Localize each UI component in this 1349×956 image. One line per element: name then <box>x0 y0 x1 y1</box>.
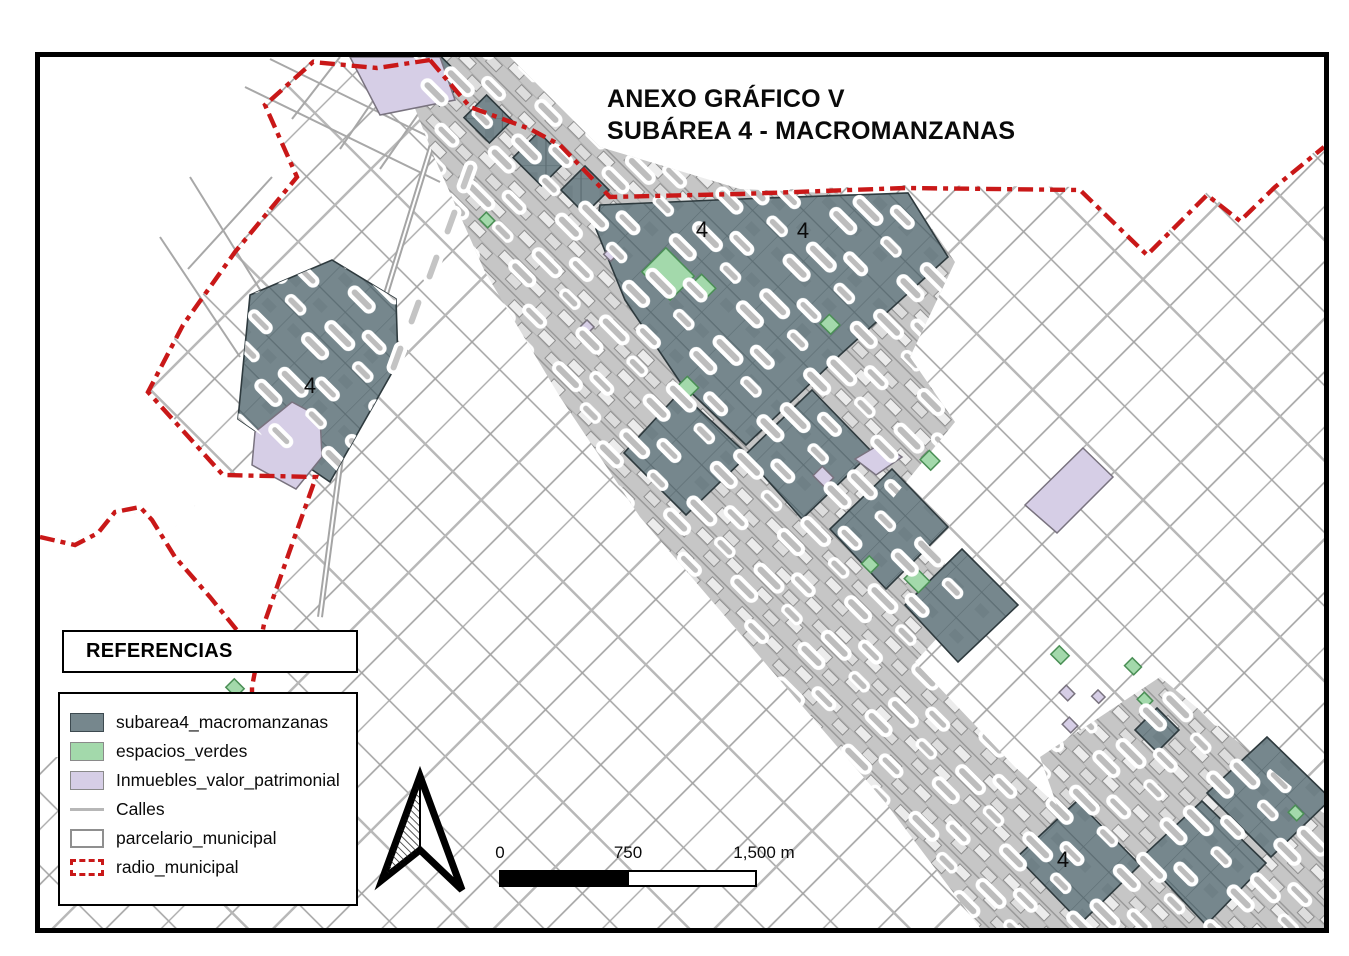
map-title-line2: SUBÁREA 4 - MACROMANZANAS <box>607 115 1015 147</box>
map-frame: 4 4 4 4 0 750 1,500 m ANEXO GRÁFICO V <box>35 52 1329 933</box>
legend-title-box: REFERENCIAS <box>62 630 358 673</box>
scale-label-1500m: 1,500 m <box>733 843 794 862</box>
espacios-verdes-swatch <box>70 742 104 761</box>
legend-item-calles: Calles <box>70 795 356 824</box>
area-label-4: 4 <box>797 218 809 243</box>
scale-label-0: 0 <box>495 843 504 862</box>
legend-title: REFERENCIAS <box>64 640 233 663</box>
calles-swatch <box>70 808 104 811</box>
legend-item-label: radio_municipal <box>116 857 239 878</box>
legend-items-box: subarea4_macromanzanas espacios_verdes I… <box>58 692 358 906</box>
radio-municipal-swatch <box>70 859 104 876</box>
legend-item-label: parcelario_municipal <box>116 828 277 849</box>
legend-item-macromanzanas: subarea4_macromanzanas <box>70 708 356 737</box>
legend-item-label: espacios_verdes <box>116 741 247 762</box>
area-label-4: 4 <box>1057 847 1069 872</box>
legend-item-inmuebles: Inmuebles_valor_patrimonial <box>70 766 356 795</box>
map-layout-page: 4 4 4 4 0 750 1,500 m ANEXO GRÁFICO V <box>0 0 1349 956</box>
inmuebles-swatch <box>70 771 104 790</box>
parcelario-swatch <box>70 829 104 848</box>
area-label-4: 4 <box>696 217 708 242</box>
legend-item-label: subarea4_macromanzanas <box>116 712 328 733</box>
legend-item-label: Calles <box>116 799 165 820</box>
map-title-line1: ANEXO GRÁFICO V <box>607 83 1015 115</box>
map-title: ANEXO GRÁFICO V SUBÁREA 4 - MACROMANZANA… <box>607 83 1015 147</box>
legend-item-radio-municipal: radio_municipal <box>70 853 356 882</box>
scale-label-750: 750 <box>614 843 642 862</box>
legend-item-espacios-verdes: espacios_verdes <box>70 737 356 766</box>
area-label-4: 4 <box>304 373 316 398</box>
legend-item-parcelario: parcelario_municipal <box>70 824 356 853</box>
macromanzanas-swatch <box>70 713 104 732</box>
legend-item-label: Inmuebles_valor_patrimonial <box>116 770 340 791</box>
